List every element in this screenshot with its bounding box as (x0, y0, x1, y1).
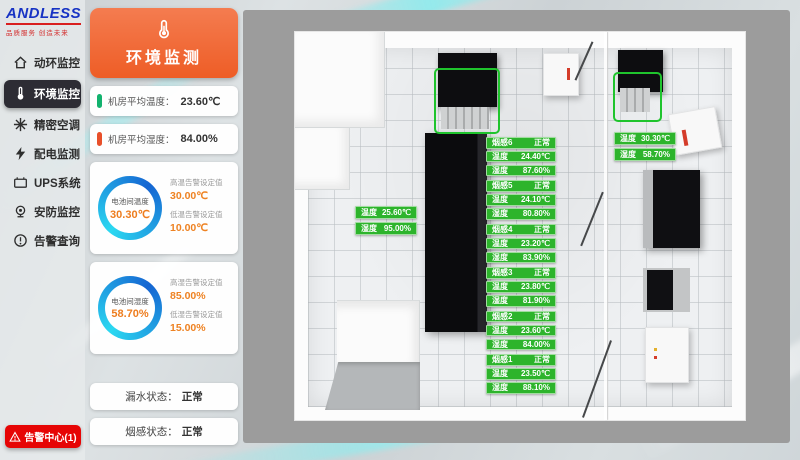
server-rack-row[interactable] (425, 133, 487, 332)
temperature-badge: 温度23.20℃ (486, 238, 556, 250)
temperature-badge: 温度23.80℃ (486, 281, 556, 293)
smoke-status-label: 烟感状态： (125, 424, 178, 439)
low-humidity-limit-label: 低湿告警设定值 (170, 309, 234, 320)
sidebar-item-label: 精密空调 (34, 117, 80, 133)
room-wall (295, 32, 385, 128)
raised-floor-mat (325, 362, 420, 410)
avg-temp-value: 23.60℃ (181, 95, 221, 108)
lightning-icon (13, 146, 28, 161)
sidebar-item-label: UPS系统 (34, 175, 81, 191)
alarm-center-label: 告警中心(1) (24, 429, 76, 444)
low-humidity-limit-value: 15.00% (170, 322, 234, 334)
sidebar-item-ups-system[interactable]: UPS系统 (4, 171, 81, 195)
avg-humidity-card: 机房平均湿度： 84.00% (90, 124, 238, 154)
low-temp-limit-label: 低温告警设定值 (170, 209, 234, 220)
sensor-group-2: 烟感2正常 温度23.60℃ 湿度84.00% (486, 311, 556, 353)
sensor-group-5: 烟感5正常 温度24.10℃ 湿度80.80% (486, 180, 556, 222)
thermometer-icon (13, 86, 28, 101)
smoke-sensor-badge: 烟感2正常 (486, 311, 556, 323)
sidebar-item-alarm-query[interactable]: 告警查询 (4, 229, 81, 253)
sensor-label-column: 烟感6正常 温度24.40℃ 湿度87.60% 烟感5正常 温度24.10℃ 湿… (486, 137, 556, 398)
high-temp-limit-label: 高温告警设定值 (170, 177, 234, 188)
crac-unit-top[interactable] (543, 53, 579, 96)
water-leak-value: 正常 (182, 389, 203, 404)
room-wall (295, 128, 350, 190)
humidity-badge: 湿度84.00% (486, 339, 556, 351)
sidebar-item-precision-ac[interactable]: 精密空调 (4, 113, 81, 137)
alarm-center-button[interactable]: 告警中心(1) (5, 425, 81, 448)
smoke-status-bar: 烟感状态： 正常 (90, 418, 238, 445)
warning-triangle-icon (9, 431, 21, 443)
sidebar-item-security-monitor[interactable]: 安防监控 (4, 200, 81, 224)
alert-icon (13, 233, 28, 248)
battery-icon (13, 175, 28, 190)
avg-humidity-value: 84.00% (181, 133, 218, 145)
humidity-badge: 湿度81.90% (486, 295, 556, 307)
smoke-sensor-badge: 烟感5正常 (486, 180, 556, 192)
power-cabinet[interactable] (645, 327, 689, 383)
temperature-badge: 温度23.60℃ (486, 325, 556, 337)
room-wall (337, 300, 420, 362)
equipment-cabinet-small[interactable] (647, 270, 673, 310)
home-icon (13, 55, 28, 70)
humidity-badge: 湿度80.80% (486, 208, 556, 220)
temperature-badge: 温度24.10℃ (486, 194, 556, 206)
gauge-value: 58.70% (111, 308, 148, 320)
battery-temp-gauge: 电池间温度 30.30℃ (98, 176, 162, 240)
humidity-badge: 湿度58.70% (614, 148, 676, 161)
high-temp-limit-value: 30.00℃ (170, 190, 234, 202)
sensor-group-3: 烟感3正常 温度23.80℃ 湿度81.90% (486, 267, 556, 309)
low-temp-limit-value: 10.00℃ (170, 222, 234, 234)
avg-temperature-card: 机房平均温度： 23.60℃ (90, 86, 238, 116)
sidebar: ANDLESS 品质服务 创造未来 动环监控 环境监控 精密空调 配电监测 UP… (0, 0, 85, 460)
sensor-group-6: 烟感6正常 温度24.40℃ 湿度87.60% (486, 137, 556, 179)
sensor-group-1: 烟感1正常 温度23.50℃ 湿度88.10% (486, 354, 556, 396)
temp-pill-icon (97, 94, 102, 108)
battery-humidity-gauge: 电池间湿度 58.70% (98, 276, 162, 340)
smoke-sensor-badge: 烟感4正常 (486, 224, 556, 236)
humidity-badge: 湿度87.60% (486, 165, 556, 177)
machine-room[interactable]: 温度25.60℃ 湿度95.00% 温度30.30℃ 湿度58.70% 烟感6正… (295, 32, 745, 420)
smoke-sensor-badge: 烟感3正常 (486, 267, 556, 279)
room-3d-viewport[interactable]: 温度25.60℃ 湿度95.00% 温度30.30℃ 湿度58.70% 烟感6正… (243, 10, 790, 443)
smoke-sensor-badge: 烟感6正常 (486, 137, 556, 149)
panel-header: 环境监测 (90, 8, 238, 78)
brand-name: ANDLESS (6, 6, 81, 25)
temperature-badge: 温度24.40℃ (486, 151, 556, 163)
sidebar-menu: 动环监控 环境监控 精密空调 配电监测 UPS系统 安防监控 告警查询 (0, 51, 85, 253)
sidebar-item-label: 安防监控 (34, 204, 80, 220)
high-humidity-limit-label: 高湿告警设定值 (170, 277, 234, 288)
temperature-badge: 温度25.60℃ (355, 206, 417, 219)
battery-room-temp-card: 电池间温度 30.30℃ 高温告警设定值 30.00℃ 低温告警设定值 10.0… (90, 162, 238, 254)
sidebar-item-label: 告警查询 (34, 233, 80, 249)
sidebar-item-label: 动环监控 (34, 55, 80, 71)
camera-icon (13, 204, 28, 219)
environment-panel: 环境监测 机房平均温度： 23.60℃ 机房平均湿度： 84.00% 电池间温度… (88, 0, 240, 445)
sidebar-item-label: 环境监控 (34, 86, 80, 102)
brand-tagline: 品质服务 创造未来 (6, 27, 81, 37)
probe-left-labels: 温度25.60℃ 湿度95.00% (355, 206, 417, 235)
battery-room-humidity-card: 电池间湿度 58.70% 高湿告警设定值 85.00% 低湿告警设定值 15.0… (90, 262, 238, 354)
humidity-badge: 湿度83.90% (486, 252, 556, 264)
avg-humidity-label: 机房平均湿度： (108, 132, 175, 146)
snowflake-icon (13, 117, 28, 132)
brand-logo: ANDLESS 品质服务 创造未来 (0, 0, 85, 37)
sidebar-item-environment-monitor[interactable]: 环境监控 (4, 80, 81, 108)
smoke-status-value: 正常 (182, 424, 203, 439)
temperature-badge: 温度23.50℃ (486, 368, 556, 380)
cabinet-selection-outline (434, 68, 500, 134)
gauge-label: 电池间湿度 (111, 296, 149, 307)
cabinet-selection-outline (613, 72, 662, 122)
humidity-badge: 湿度88.10% (486, 382, 556, 394)
smoke-sensor-badge: 烟感1正常 (486, 354, 556, 366)
high-humidity-limit-value: 85.00% (170, 290, 234, 302)
avg-temp-label: 机房平均温度： (108, 94, 175, 108)
temperature-badge: 温度30.30℃ (614, 132, 676, 145)
sidebar-item-powerenv-monitor[interactable]: 动环监控 (4, 51, 81, 75)
probe-right-labels: 温度30.30℃ 湿度58.70% (614, 132, 676, 161)
temp-alarm-limits: 高温告警设定值 30.00℃ 低温告警设定值 10.00℃ (170, 170, 234, 234)
sensor-group-4: 烟感4正常 温度23.20℃ 湿度83.90% (486, 224, 556, 266)
gauge-label: 电池间温度 (111, 196, 149, 207)
humidity-alarm-limits: 高湿告警设定值 85.00% 低湿告警设定值 15.00% (170, 270, 234, 334)
panel-title: 环境监测 (126, 44, 202, 68)
sidebar-item-power-distribution[interactable]: 配电监测 (4, 142, 81, 166)
server-rack-right[interactable] (643, 170, 700, 248)
glass-partition (604, 32, 607, 420)
humidity-badge: 湿度95.00% (355, 222, 417, 235)
water-leak-label: 漏水状态： (125, 389, 178, 404)
sidebar-item-label: 配电监测 (34, 146, 80, 162)
thermometer-icon (153, 18, 175, 40)
gauge-value: 30.30℃ (110, 208, 150, 221)
water-leak-status-bar: 漏水状态： 正常 (90, 383, 238, 410)
humidity-pill-icon (97, 132, 102, 146)
